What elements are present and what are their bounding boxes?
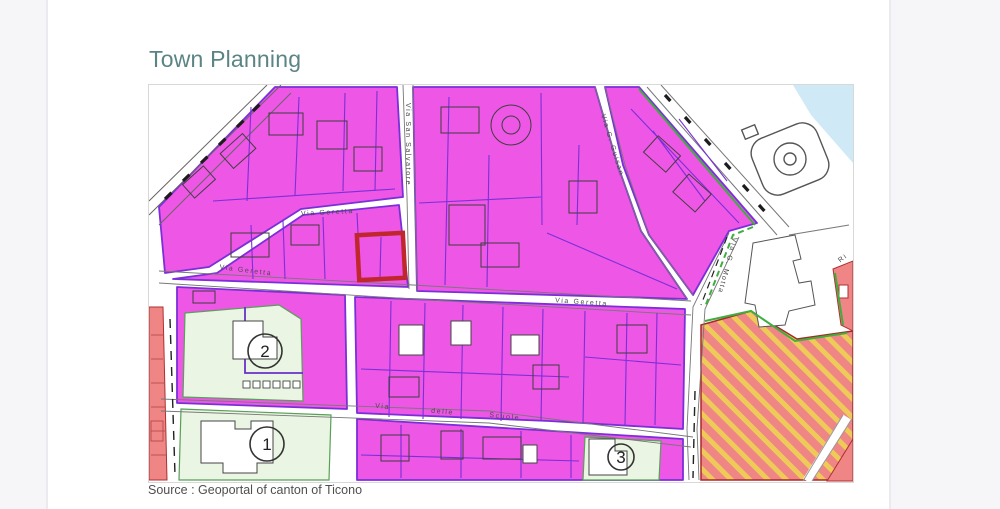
- street-label-scuole-1: Via: [375, 403, 390, 411]
- street-label-riva: Ri: [837, 253, 849, 265]
- map-figure: 2 1 3 Via Geretta Via Geretta Via Gerett…: [148, 84, 854, 483]
- zone-south-central: [355, 297, 685, 429]
- svg-text:1: 1: [262, 435, 271, 454]
- right-margin: [889, 0, 1000, 509]
- zone-salmon-left: [149, 307, 167, 480]
- document-page: Town Planning: [0, 0, 1000, 509]
- svg-text:3: 3: [616, 448, 625, 467]
- page-title: Town Planning: [149, 46, 301, 73]
- svg-text:2: 2: [260, 342, 269, 361]
- round-building: [742, 118, 834, 200]
- source-caption: Source : Geoportal of canton of Ticono: [148, 483, 362, 497]
- left-margin: [0, 0, 48, 509]
- street-label-san-salvatore: Via San Salvatore: [404, 103, 411, 186]
